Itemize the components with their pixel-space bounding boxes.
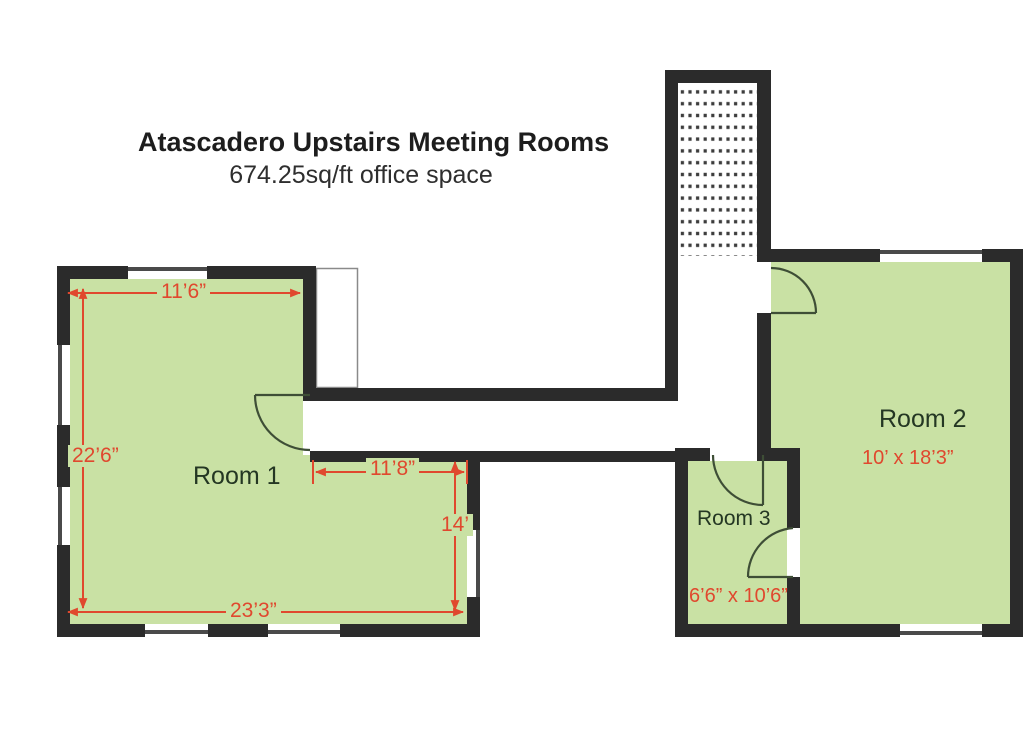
wall-segment [1010,249,1023,637]
window-segment [128,267,207,271]
room1-label: Room 1 [193,463,281,489]
wall-segment [57,545,70,637]
window-segment [145,630,208,634]
window-segment [58,345,62,425]
wall-segment [757,70,771,262]
window-segment [900,631,982,635]
dim-label-room1-bottom-width: 23’3” [226,600,281,622]
dim-label-room1-inner-height: 14’ [437,514,473,536]
floor-plan-canvas: Atascadero Upstairs Meeting Rooms 674.25… [0,0,1024,755]
wall-segment [57,624,145,637]
window-segment [58,487,62,545]
wall-segment [303,266,316,395]
wall-segment [675,624,800,637]
wall-segment [467,597,480,637]
room2-floor [771,262,1010,624]
wall-segment [757,313,771,448]
dim-label-room2-size: 10’ x 18’3” [862,448,954,469]
wall-segment [793,624,900,637]
wall-segment [787,577,800,637]
room1-extension-floor [303,455,467,624]
dim-label-room1-top-width: 11’6” [157,281,210,303]
wall-segment [665,70,678,401]
wall-segment [57,266,70,345]
window-segment [880,250,982,254]
dim-label-room1-inner-width: 11’8” [366,458,419,480]
wall-segment [310,451,675,462]
wall-segment [208,624,268,637]
window-segment [476,530,480,597]
plan-title: Atascadero Upstairs Meeting Rooms [138,128,584,156]
room2-label: Room 2 [879,406,967,432]
wall-segment [207,266,316,279]
floor-plan-drawing [0,0,1024,755]
room3-label: Room 3 [697,508,771,530]
wall-segment [665,70,770,83]
wall-segment [340,624,480,637]
plan-subtitle: 674.25sq/ft office space [138,162,584,188]
wall-segment [982,624,1023,637]
dim-label-room1-left-height: 22’6” [68,445,123,467]
wall-segment [675,448,688,637]
closet-alcove [317,269,358,388]
stairway-treads [679,84,757,256]
room-floors [70,262,1010,624]
wall-segment [757,249,880,262]
wall-segment [303,388,678,401]
window-segment [268,630,340,634]
dim-label-room3-size: 6’6” x 10’6” [689,586,788,607]
wall-segment [787,448,800,528]
